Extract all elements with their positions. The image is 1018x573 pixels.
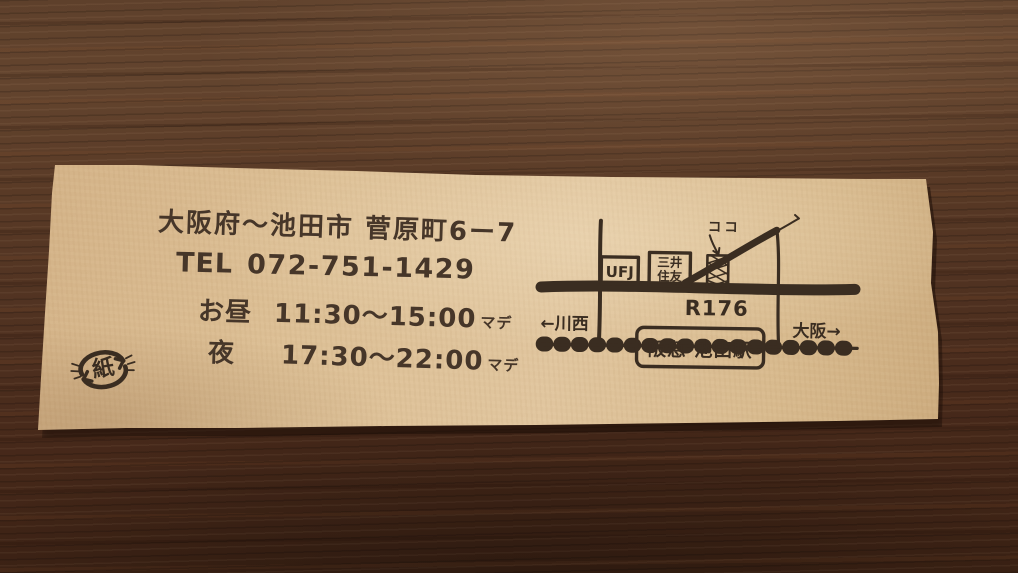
lunch-until-suffix: マデ [480,313,513,332]
route-label: R176 [685,296,749,321]
dinner-until-suffix: マデ [487,356,520,375]
dinner-label: 夜 [208,338,236,369]
station-label: 阪急 池田駅 [648,338,753,361]
address-text: 大阪府〜池田市 菅原町6ー7 [158,201,518,249]
tel-line: TEL072-751-1429 [176,247,476,285]
bank-mitsui-label-line1: 三井 [657,255,683,270]
hand-drawn-map: ココ UFJ 三井 住友 R176 ←川西 大阪→ 阪急 池田駅 [529,196,991,382]
lunch-time: 11:30〜15:00 [274,299,477,335]
kraft-paper-note: 大阪府〜池田市 菅原町6ー7 TEL072-751-1429 お昼11:30〜1… [36,163,942,435]
dinner-time: 17:30〜22:00 [281,340,484,376]
lunch-label: お昼 [198,297,253,328]
dinner-hours-line: 夜17:30〜22:00マデ [207,332,520,379]
direction-west-label: ←川西 [540,314,589,335]
tel-label: TEL [176,247,234,279]
shop-access-road [685,229,777,284]
recycle-paper-stamp: 紙 [63,330,142,404]
here-label: ココ [708,219,741,235]
bank-mitsui-label-line2: 住友 [657,269,683,284]
direction-east-label: 大阪→ [792,320,841,342]
route-176-road [541,285,855,291]
tel-number: 072-751-1429 [247,249,476,286]
table-photo: 大阪府〜池田市 菅原町6ー7 TEL072-751-1429 お昼11:30〜1… [0,0,1018,573]
bank-ufj-label: UFJ [606,263,634,281]
recycle-kanji: 紙 [90,354,116,383]
here-arrow-icon [709,235,719,254]
lunch-hours-line: お昼11:30〜15:00マデ [198,291,513,337]
